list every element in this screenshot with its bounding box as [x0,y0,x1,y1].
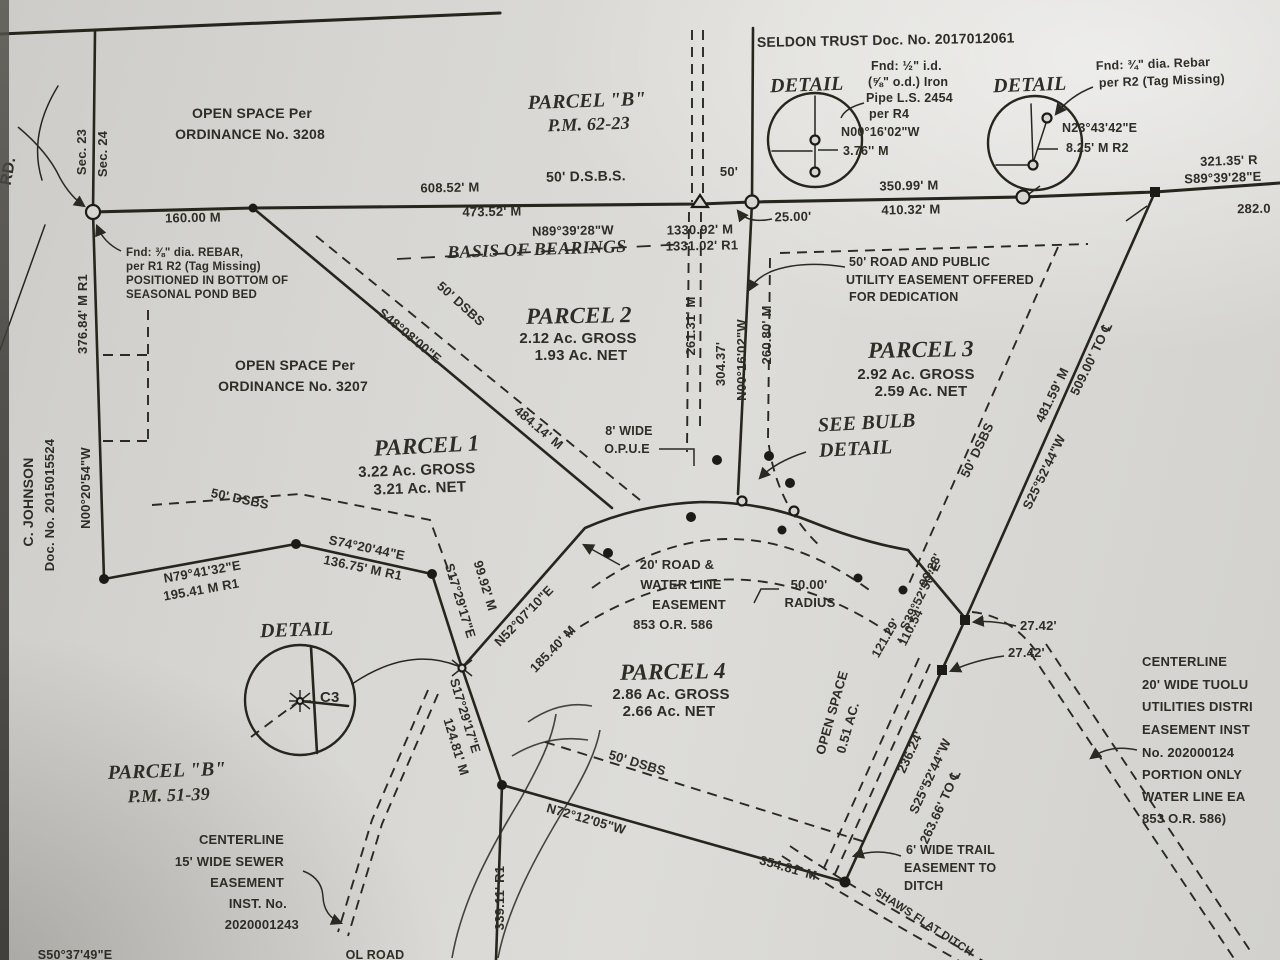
road20-line4: 853 O.R. 586 [633,617,713,632]
tud-note-2: 20' WIDE TUOLU [1142,677,1248,692]
parcel4-gross: 2.86 Ac. GROSS [612,686,729,703]
v-dist-339: 339.11' R1 [492,866,507,930]
parcel-b-62-name: PARCEL "B" [526,88,646,114]
rebar-note-2: per R1 R2 (Tag Missing) [126,261,261,273]
tud-note-6: PORTION ONLY [1142,767,1242,782]
owner-johnson-doc: Doc. No. 2015015524 [42,438,57,571]
tud-note-5: No. 202000124 [1142,745,1235,760]
detail1-note-3: Pipe L.S. 2454 [866,91,953,105]
dist-25: 25.00' [774,209,811,225]
see-bulb-line1: SEE BULB [817,409,916,436]
owner-johnson: C. JOHNSON [20,457,36,546]
scan-edge-shadow [0,0,9,960]
sewer-note-3: EASEMENT [210,875,284,890]
parcel1-net: 3.21 Ac. NET [373,478,466,498]
detail1-note-2: (⅝" o.d.) Iron [868,75,948,89]
s48-distance: 484.14' M [511,403,566,452]
parcel1-name: PARCEL 1 [372,430,480,461]
detail2-bearing: N23°43'42"E [1062,121,1137,135]
parcel-b-62-ref: P.M. 62-23 [546,113,630,136]
west-distance: 376.84' M R1 [75,274,90,354]
tud-note-8: 853 O.R. 586) [1142,811,1226,826]
trail-note-3: DITCH [904,879,943,893]
parcel-b-51-name: PARCEL "B" [106,758,226,784]
parcel2-name: PARCEL 2 [525,302,632,329]
x-junction-monument [452,660,472,676]
road20-line1: 20' ROAD & [640,557,714,572]
parcel3-gross: 2.92 Ac. GROSS [857,366,974,383]
parcel4-name: PARCEL 4 [619,658,726,685]
tud-note-1: CENTERLINE [1142,654,1227,669]
open-space-3208-line2: ORDINANCE No. 3208 [175,126,325,142]
opue-line2: O.P.U.E [604,442,650,456]
c3-label: C3 [320,689,340,706]
tud-note-4: EASEMENT INST [1142,722,1250,737]
parcel-b-51-ref: P.M. 51-39 [126,784,210,807]
dist-2742-upper: 27.42' [1020,618,1057,633]
basis-dist-r1: 1331.02' R1 [666,237,739,253]
detail2-note-1: Fnd: ¾" dia. Rebar [1096,55,1211,73]
plat-drawing: OPEN SPACE Per ORDINANCE No. 3208 Sec. 2… [0,0,1280,960]
detail3-title: DETAIL [259,618,334,643]
trail-note-1: 6' WIDE TRAIL [906,843,995,857]
boundary-lines [0,13,1280,960]
s89-bearing: S89°39'28"E [1184,169,1262,187]
dist-473: 473.52' M [462,203,521,219]
sewer-note-1: CENTERLINE [199,832,284,847]
rebar-note-4: SEASONAL POND BED [126,289,257,301]
trail-note-2: EASEMENT TO [904,861,996,875]
detail2-distance: 8.25' M R2 [1066,141,1129,155]
open-space-3207-line1: OPEN SPACE Per [235,357,355,373]
n72-distance: 354.81' M [758,852,819,883]
dist-321: 321.35' R [1200,152,1259,169]
detail1-distance: 3.76'' M [843,144,889,158]
section-24-label: Sec. 24 [95,130,110,177]
detail1-title: DETAIL [769,73,844,98]
seldon-trust-doc: SELDON TRUST Doc. No. 2017012061 [757,30,1015,50]
v-dist-304: 304.37' [713,342,728,386]
dsbs-parcel4: 50' DSBS [607,747,668,779]
dist-608: 608.52' M [420,179,479,195]
dist-236: 236.24' [894,729,926,775]
detail2-title: DETAIL [992,73,1067,98]
road-fragment-bottom: OL ROAD [346,948,405,960]
road20-line3: EASEMENT [652,597,726,612]
dist-50: 50' [720,164,738,179]
open-space-3207-line2: ORDINANCE No. 3207 [218,378,368,394]
shaws-flat-ditch: SHAWS FLAT DITCH [872,886,975,959]
sewer-note-4: INST. No. [229,896,287,911]
dedication-note-1: 50' ROAD AND PUBLIC [849,255,990,269]
sewer-note-2: 15' WIDE SEWER [175,854,285,869]
west-bearing: N00°20'54"W [78,447,93,529]
detail1-bearing: N00°16'02"W [841,125,920,139]
dsbs-parcel1: 50' DSBS [210,485,271,512]
dedication-note-2: UTILITY EASEMENT OFFERED [846,273,1034,287]
v-dist-261: 261.31' M [683,296,698,355]
parcel3-net: 2.59 Ac. NET [875,383,968,400]
tud-note-3: UTILITIES DISTRI [1142,699,1253,714]
road20-line2: WATER LINE [640,577,721,592]
parcel3-name: PARCEL 3 [867,336,974,363]
rebar-note-1: Fnd: ⅜" dia. REBAR, [126,247,243,259]
triangle-monument [692,195,708,207]
s17a-bearing: S17°29'17"E [442,561,479,640]
dsbs-parcel2: 50' DSBS [434,278,488,329]
basis-dist-m: 1330.92' M [667,221,734,237]
dist-282: 282.0 [1237,201,1271,217]
c3-star-monument [289,690,311,712]
v-bearing-n0016: N00°16'02"W [734,319,749,401]
opue-line1: 8' WIDE [605,424,652,438]
labels: OPEN SPACE Per ORDINANCE No. 3208 Sec. 2… [0,30,1271,960]
n52-distance: 185.40' M [527,622,579,675]
dist-509-to-cl: 509.00' TO ℄ [1067,320,1115,398]
section-23-label: Sec. 23 [74,129,89,175]
dedication-note-3: FOR DEDICATION [849,290,959,304]
parcel-map-scan: OPEN SPACE Per ORDINANCE No. 3208 Sec. 2… [0,0,1280,960]
sewer-note-5: 2020001243 [225,917,299,932]
s17a-distance: 99.92' M [471,559,500,613]
s48-bearing: S48°08'00"E [375,305,444,366]
parcel2-gross: 2.12 Ac. GROSS [519,330,636,347]
dist-2742-lower: 27.42' [1008,645,1045,660]
dsbs-50-top: 50' D.S.B.S. [546,167,626,184]
dist-160: 160.00 M [165,210,221,226]
open-space-3208-line1: OPEN SPACE Per [192,105,312,121]
parcel4-net: 2.66 Ac. NET [623,703,716,720]
bearing-fragment-bottom-left: S50°37'49"E [38,948,112,960]
detail1-note-4: per R4 [869,107,909,121]
tud-note-7: WATER LINE EA [1142,789,1246,804]
basis-of-bearings: BASIS OF BEARINGS [446,236,627,262]
easement-dashed-lines [103,30,1251,960]
dist-350: 350.99' M [879,177,938,193]
radius-line1: 50.00' [791,577,828,592]
v-dist-260: 260.80' M [759,305,774,364]
n72-bearing: N72°12'05"W [545,800,628,837]
rebar-note-3: POSITIONED IN BOTTOM OF [126,275,288,287]
dist-410: 410.32' M [881,201,940,217]
dsbs-east: 50' DSBS [957,420,996,480]
n52-bearing: N52°07'10"E [491,582,556,649]
parcel2-net: 1.93 Ac. NET [535,347,628,364]
radius-line2: RADIUS [784,595,835,610]
detail1-note-1: Fnd: ½" i.d. [871,59,942,73]
detail-circles [245,93,1082,755]
see-bulb-line2: DETAIL [817,436,892,462]
detail2-note-2: per R2 (Tag Missing) [1099,72,1225,90]
